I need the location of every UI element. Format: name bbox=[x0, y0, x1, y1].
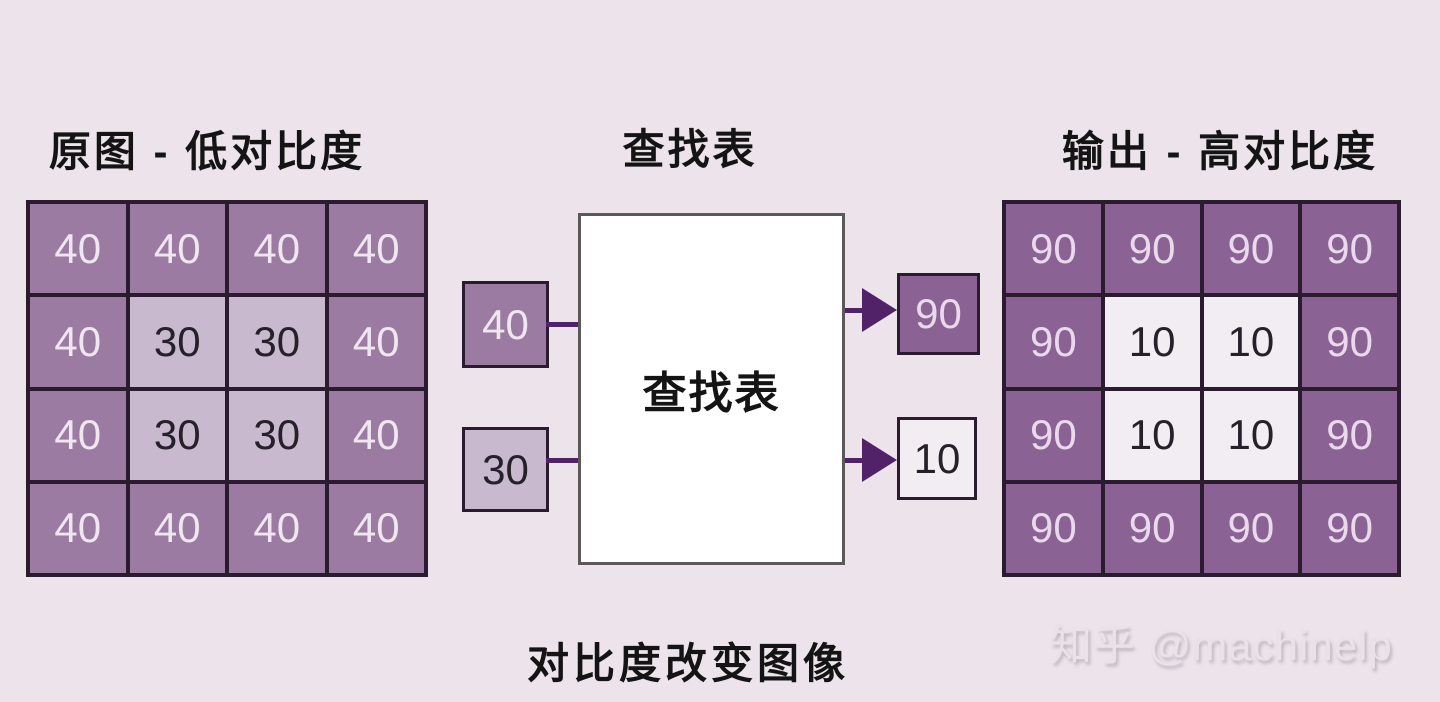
grid-cell: 40 bbox=[30, 204, 126, 293]
lut-input-box-30: 30 bbox=[462, 427, 549, 512]
grid-cell: 30 bbox=[229, 297, 325, 386]
original-image-title: 原图 - 低对比度 bbox=[49, 118, 365, 179]
grid-cell: 90 bbox=[1204, 204, 1299, 293]
grid-cell: 40 bbox=[30, 484, 126, 573]
grid-cell: 90 bbox=[1006, 484, 1101, 573]
grid-cell: 90 bbox=[1302, 391, 1397, 480]
grid-cell: 30 bbox=[130, 391, 226, 480]
grid-cell: 90 bbox=[1105, 204, 1200, 293]
grid-cell: 10 bbox=[1204, 297, 1299, 386]
grid-cell: 40 bbox=[229, 484, 325, 573]
grid-cell: 40 bbox=[30, 297, 126, 386]
grid-cell: 40 bbox=[329, 484, 425, 573]
grid-cell: 90 bbox=[1204, 484, 1299, 573]
grid-cell: 90 bbox=[1006, 297, 1101, 386]
grid-cell: 40 bbox=[30, 391, 126, 480]
diagram-canvas: 原图 - 低对比度 404040404030304040303040404040… bbox=[0, 0, 1440, 702]
grid-cell: 90 bbox=[1302, 297, 1397, 386]
lut-output-box-90: 90 bbox=[897, 273, 980, 355]
grid-cell: 90 bbox=[1006, 391, 1101, 480]
lut-input-box-40: 40 bbox=[462, 281, 549, 368]
output-image-title: 输出 - 高对比度 bbox=[1062, 118, 1378, 179]
grid-cell: 40 bbox=[329, 204, 425, 293]
input-connector-line bbox=[546, 322, 578, 327]
grid-cell: 30 bbox=[229, 391, 325, 480]
grid-cell: 90 bbox=[1302, 484, 1397, 573]
input-connector-line bbox=[546, 458, 578, 463]
grid-cell: 10 bbox=[1204, 391, 1299, 480]
grid-cell: 40 bbox=[130, 484, 226, 573]
lut-output-box-10: 10 bbox=[897, 417, 977, 500]
grid-cell: 40 bbox=[329, 297, 425, 386]
grid-cell: 90 bbox=[1302, 204, 1397, 293]
lookup-table-title: 查找表 bbox=[622, 116, 757, 177]
grid-cell: 30 bbox=[130, 297, 226, 386]
grid-cell: 40 bbox=[130, 204, 226, 293]
grid-cell: 90 bbox=[1105, 484, 1200, 573]
output-image-grid: 90909090901010909010109090909090 bbox=[1002, 200, 1401, 577]
watermark: 知乎 @machinelp bbox=[1050, 612, 1393, 673]
grid-cell: 40 bbox=[229, 204, 325, 293]
lookup-table-box-label: 查找表 bbox=[643, 357, 781, 421]
lookup-table-box: 查找表 bbox=[578, 213, 845, 565]
grid-cell: 10 bbox=[1105, 391, 1200, 480]
original-image-grid: 40404040403030404030304040404040 bbox=[26, 200, 428, 577]
grid-cell: 10 bbox=[1105, 297, 1200, 386]
arrow-right-icon bbox=[862, 288, 897, 332]
grid-cell: 40 bbox=[329, 391, 425, 480]
grid-cell: 90 bbox=[1006, 204, 1101, 293]
diagram-caption: 对比度改变图像 bbox=[527, 630, 849, 691]
arrow-right-icon bbox=[862, 438, 897, 482]
